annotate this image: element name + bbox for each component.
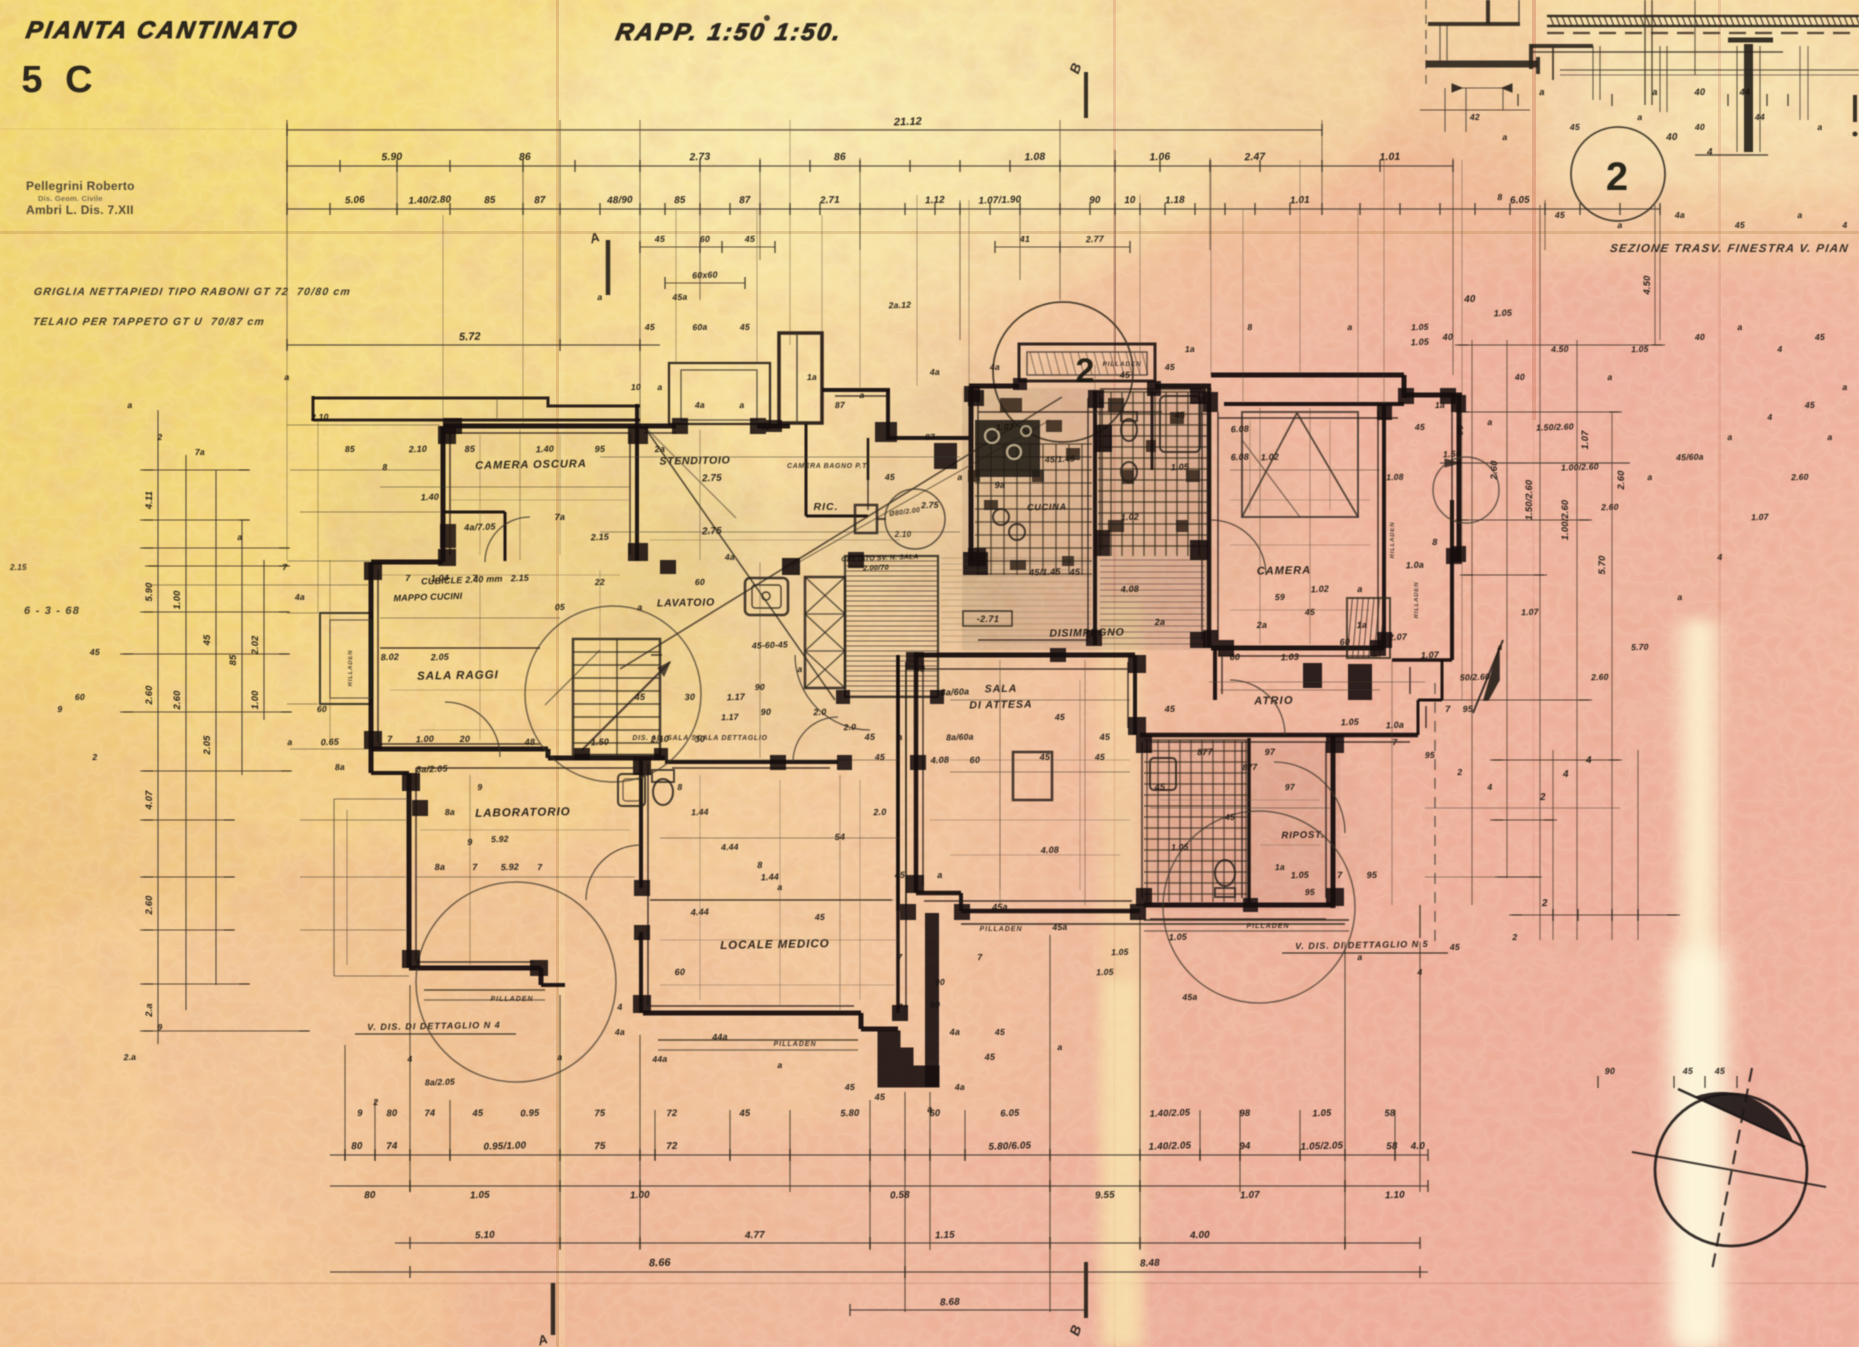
svg-text:1.44: 1.44	[691, 807, 709, 818]
svg-text:45/60a: 45/60a	[1675, 452, 1704, 463]
svg-text:1.00/2.60: 1.00/2.60	[1560, 499, 1570, 540]
svg-text:9: 9	[467, 837, 473, 847]
svg-text:TELAIO PER TAPPETO GT U 70/87: TELAIO PER TAPPETO GT U 70/87 cm	[32, 316, 266, 328]
svg-text:1.02: 1.02	[1311, 584, 1330, 595]
svg-text:80: 80	[351, 1141, 363, 1152]
svg-text:2.60: 2.60	[144, 895, 154, 916]
svg-text:20: 20	[459, 734, 471, 744]
svg-text:4.07: 4.07	[144, 790, 154, 811]
svg-text:1.05: 1.05	[1411, 337, 1430, 348]
svg-text:60: 60	[700, 234, 711, 244]
svg-text:4.08: 4.08	[1040, 845, 1060, 856]
svg-text:2: 2	[1511, 932, 1517, 942]
svg-text:40: 40	[1693, 87, 1706, 97]
svg-text:45: 45	[894, 870, 907, 880]
svg-text:9: 9	[157, 1022, 162, 1032]
svg-text:4a: 4a	[989, 362, 1000, 372]
svg-text:2a: 2a	[1256, 620, 1268, 630]
svg-text:1.05: 1.05	[1291, 870, 1310, 881]
svg-text:4: 4	[1776, 344, 1782, 354]
svg-text:60: 60	[675, 967, 686, 977]
svg-text:45: 45	[874, 1092, 887, 1102]
svg-text:a: a	[557, 1052, 562, 1062]
svg-text:SALA: SALA	[985, 683, 1018, 696]
svg-text:45: 45	[1804, 400, 1815, 410]
svg-text:2.60: 2.60	[1489, 460, 1499, 481]
svg-text:2.05: 2.05	[430, 652, 450, 663]
svg-text:1.01: 1.01	[1379, 152, 1400, 164]
svg-text:60: 60	[695, 577, 705, 587]
svg-text:a: a	[927, 1104, 933, 1114]
svg-text:10: 10	[1124, 195, 1136, 206]
svg-text:44a: 44a	[651, 1054, 667, 1065]
svg-text:CAMERA OSCURA: CAMERA OSCURA	[475, 458, 587, 472]
svg-text:2.a: 2.a	[144, 1003, 154, 1018]
svg-text:40: 40	[1463, 294, 1476, 305]
svg-text:a: a	[1727, 432, 1732, 442]
svg-text:60: 60	[1340, 637, 1351, 647]
svg-text:6.08: 6.08	[1231, 452, 1250, 463]
svg-text:90: 90	[1605, 1066, 1616, 1076]
svg-text:45: 45	[1224, 812, 1235, 822]
svg-text:85: 85	[465, 444, 477, 454]
svg-text:5.72: 5.72	[459, 331, 481, 344]
svg-text:45a: 45a	[1181, 992, 1197, 1003]
svg-text:a: a	[1677, 592, 1682, 602]
svg-text:2.10: 2.10	[894, 530, 912, 539]
svg-text:87: 87	[739, 195, 751, 206]
svg-text:2.05: 2.05	[202, 735, 212, 756]
svg-text:60x60: 60x60	[692, 270, 718, 281]
svg-text:SEZIONE TRASV. FINESTRA V. PIA: SEZIONE TRASV. FINESTRA V. PIAN	[1609, 243, 1850, 255]
svg-text:4: 4	[1562, 769, 1569, 780]
svg-text:4.77: 4.77	[744, 1230, 766, 1242]
svg-text:90: 90	[755, 682, 765, 692]
svg-text:1.02: 1.02	[1261, 452, 1280, 463]
svg-text:4: 4	[1766, 412, 1772, 422]
svg-text:1.50/2.60: 1.50/2.60	[1524, 479, 1534, 520]
svg-text:21.12: 21.12	[893, 116, 922, 129]
svg-text:2.10: 2.10	[310, 412, 329, 423]
svg-text:7a: 7a	[195, 447, 205, 457]
svg-text:2.75: 2.75	[701, 473, 723, 485]
svg-text:4.00: 4.00	[1189, 1230, 1211, 1242]
svg-text:0.95/1.00: 0.95/1.00	[483, 1140, 526, 1152]
svg-text:48: 48	[524, 737, 536, 747]
svg-text:4.50: 4.50	[1642, 275, 1652, 296]
svg-text:22: 22	[594, 577, 605, 587]
svg-text:a: a	[777, 1060, 782, 1070]
svg-text:45: 45	[1734, 220, 1745, 230]
svg-text:RILLADEN: RILLADEN	[348, 650, 354, 687]
svg-text:1.40/2.05: 1.40/2.05	[1148, 1140, 1191, 1152]
svg-text:45: 45	[1304, 607, 1315, 617]
svg-text:40: 40	[1514, 372, 1525, 382]
svg-text:5.90: 5.90	[381, 152, 402, 164]
svg-text:8: 8	[1432, 537, 1438, 547]
svg-text:87: 87	[835, 400, 846, 410]
svg-text:1.10: 1.10	[1385, 1190, 1406, 1202]
svg-text:PIANTA CANTINATO: PIANTA CANTINATO	[24, 17, 301, 44]
svg-text:2.60: 2.60	[172, 690, 182, 711]
svg-text:58: 58	[1386, 1141, 1398, 1152]
svg-text:RILLADEN: RILLADEN	[1414, 582, 1420, 619]
svg-text:85: 85	[345, 444, 355, 454]
svg-text:8.48: 8.48	[1140, 1258, 1161, 1270]
svg-text:8a/60a: 8a/60a	[940, 687, 969, 698]
svg-text:8a/2.05: 8a/2.05	[416, 763, 449, 774]
svg-text:5.92: 5.92	[491, 834, 509, 845]
svg-text:LAVATOIO: LAVATOIO	[657, 596, 715, 609]
svg-text:9.55: 9.55	[1095, 1190, 1116, 1202]
svg-text:95: 95	[595, 444, 607, 454]
svg-text:45: 45	[874, 752, 885, 762]
svg-text:4: 4	[1416, 967, 1422, 977]
svg-text:86: 86	[519, 152, 531, 163]
svg-text:54: 54	[835, 832, 846, 842]
svg-text:LABORATORIO: LABORATORIO	[475, 806, 571, 820]
svg-text:a: a	[1539, 87, 1545, 97]
svg-text:a: a	[597, 292, 602, 302]
svg-text:2.15: 2.15	[590, 532, 610, 543]
svg-text:a: a	[859, 390, 864, 400]
svg-text:1.0a: 1.0a	[1406, 560, 1425, 571]
svg-text:45: 45	[744, 234, 756, 244]
svg-text:4.44: 4.44	[690, 907, 710, 918]
svg-text:90: 90	[935, 977, 945, 987]
svg-text:a: a	[1357, 584, 1363, 594]
svg-text:45: 45	[1414, 422, 1425, 432]
svg-text:87: 87	[925, 432, 936, 442]
svg-text:45: 45	[1449, 942, 1460, 952]
svg-text:42: 42	[1469, 112, 1480, 122]
svg-text:1.05/2.05: 1.05/2.05	[1300, 1140, 1343, 1152]
svg-text:45: 45	[1814, 332, 1825, 342]
svg-text:45: 45	[89, 647, 100, 657]
svg-text:90: 90	[930, 1000, 941, 1010]
svg-text:45: 45	[1054, 712, 1065, 722]
svg-text:1.15: 1.15	[935, 1230, 956, 1242]
svg-text:4a: 4a	[949, 1027, 961, 1037]
svg-text:RIC.: RIC.	[814, 501, 839, 513]
svg-text:4.08: 4.08	[1120, 584, 1140, 595]
svg-text:a: a	[1487, 417, 1492, 427]
svg-text:45a: 45a	[671, 292, 687, 303]
svg-text:a: a	[1637, 112, 1642, 122]
svg-text:45: 45	[1039, 752, 1052, 762]
svg-text:45: 45	[1554, 210, 1565, 220]
svg-text:Dis. Geom. Civile: Dis. Geom. Civile	[38, 194, 103, 203]
svg-text:45: 45	[739, 322, 750, 332]
svg-text:Ambri L. Dis. 7.XII: Ambri L. Dis. 7.XII	[26, 203, 134, 217]
svg-text:a: a	[1797, 210, 1802, 220]
svg-text:CAMERA BAGNO P.T.: CAMERA BAGNO P.T.	[787, 463, 869, 470]
svg-text:8a/60a: 8a/60a	[946, 732, 974, 743]
svg-text:6 - 3 - 68: 6 - 3 - 68	[24, 605, 80, 617]
svg-text:2: 2	[1456, 767, 1462, 777]
svg-text:a: a	[797, 664, 802, 674]
svg-text:2.73: 2.73	[688, 152, 710, 164]
svg-text:1a: 1a	[1275, 862, 1285, 872]
svg-text:2.77: 2.77	[1085, 234, 1105, 245]
svg-text:2a.12: 2a.12	[887, 300, 911, 311]
svg-text:60: 60	[317, 704, 327, 714]
svg-text:1.07: 1.07	[1751, 512, 1770, 523]
svg-text:a: a	[657, 382, 662, 392]
svg-text:8.68: 8.68	[940, 1297, 961, 1309]
svg-text:40: 40	[1442, 332, 1454, 342]
svg-text:a: a	[1737, 322, 1742, 332]
svg-text:a: a	[127, 400, 132, 410]
svg-text:4: 4	[1841, 220, 1847, 230]
svg-text:45: 45	[1094, 752, 1105, 762]
svg-text:9: 9	[357, 1108, 363, 1118]
svg-text:2: 2	[1606, 155, 1628, 199]
svg-text:9: 9	[57, 704, 62, 714]
svg-text:1.07: 1.07	[1580, 430, 1590, 450]
svg-text:4.50: 4.50	[1550, 344, 1569, 355]
svg-text:1.40/2.05: 1.40/2.05	[1149, 1107, 1191, 1118]
svg-text:1.40: 1.40	[536, 444, 555, 455]
svg-text:44a: 44a	[711, 1032, 728, 1043]
svg-text:75: 75	[594, 1141, 606, 1152]
svg-text:4: 4	[616, 1002, 623, 1012]
svg-text:2.0: 2.0	[872, 807, 886, 817]
svg-text:5.70: 5.70	[1597, 555, 1607, 575]
svg-text:45: 45	[814, 912, 825, 922]
svg-text:4a: 4a	[614, 1027, 625, 1037]
svg-text:5.80: 5.80	[840, 1108, 860, 1119]
svg-text:PILLADEN: PILLADEN	[1103, 361, 1142, 368]
svg-text:2.60: 2.60	[144, 685, 154, 706]
svg-text:1.07: 1.07	[996, 422, 1015, 433]
svg-text:2.15: 2.15	[9, 563, 27, 572]
svg-text:4: 4	[1585, 755, 1592, 766]
svg-text:2.a: 2.a	[122, 1052, 136, 1062]
svg-text:0.95: 0.95	[520, 1108, 540, 1119]
svg-text:a: a	[1617, 220, 1622, 230]
svg-text:877: 877	[1197, 747, 1214, 758]
svg-text:45: 45	[1164, 362, 1175, 372]
svg-text:5.92: 5.92	[501, 862, 520, 873]
svg-text:1.05: 1.05	[470, 1190, 491, 1202]
svg-text:a: a	[1497, 642, 1502, 652]
svg-text:1.02: 1.02	[1121, 512, 1140, 523]
svg-text:5 C: 5 C	[21, 59, 98, 101]
svg-text:45: 45	[1069, 567, 1082, 577]
svg-text:97: 97	[1285, 782, 1296, 792]
svg-text:2.10: 2.10	[408, 444, 428, 455]
svg-text:98: 98	[1239, 1108, 1251, 1118]
svg-text:2: 2	[1541, 898, 1548, 909]
svg-text:a: a	[1357, 952, 1362, 962]
svg-text:85: 85	[674, 195, 686, 206]
svg-text:a: a	[1502, 132, 1507, 142]
svg-text:4a: 4a	[954, 1082, 965, 1092]
svg-text:45: 45	[1164, 704, 1177, 714]
svg-text:4.0: 4.0	[1410, 1141, 1426, 1153]
svg-text:2.02: 2.02	[250, 635, 260, 656]
svg-text:2.10: 2.10	[650, 734, 670, 745]
svg-text:a: a	[1607, 372, 1612, 382]
svg-text:PILLADEN: PILLADEN	[980, 926, 1023, 933]
svg-text:1a: 1a	[1357, 620, 1368, 630]
svg-text:RAPP. 1:50 1:50.: RAPP. 1:50 1:50.	[614, 19, 845, 46]
svg-text:1.00: 1.00	[416, 734, 435, 745]
svg-text:8: 8	[382, 462, 387, 472]
svg-text:6.05: 6.05	[1000, 1108, 1020, 1119]
svg-text:1.07: 1.07	[1521, 607, 1540, 618]
svg-text:1.03: 1.03	[1281, 652, 1300, 663]
svg-text:4a: 4a	[724, 552, 735, 562]
svg-text:95: 95	[1425, 750, 1435, 760]
svg-text:94: 94	[1239, 1141, 1251, 1152]
svg-text:95: 95	[1305, 887, 1315, 897]
svg-text:a: a	[1842, 382, 1847, 392]
svg-text:2.15: 2.15	[510, 573, 530, 584]
svg-text:1.07: 1.07	[1240, 1190, 1261, 1202]
svg-text:90: 90	[1089, 195, 1101, 206]
svg-text:58: 58	[1384, 1108, 1396, 1118]
svg-text:45: 45	[1174, 410, 1187, 420]
svg-text:1a: 1a	[1185, 344, 1195, 354]
svg-text:0.58: 0.58	[890, 1190, 911, 1202]
svg-text:1.17: 1.17	[721, 712, 740, 723]
svg-text:a: a	[237, 532, 242, 542]
svg-text:45: 45	[471, 1108, 484, 1118]
svg-text:1.08: 1.08	[1024, 152, 1045, 164]
svg-text:2.60: 2.60	[1790, 472, 1809, 483]
svg-text:a: a	[1827, 432, 1832, 442]
svg-text:40: 40	[1694, 122, 1705, 132]
svg-text:4: 4	[1486, 782, 1492, 792]
svg-text:85: 85	[228, 654, 238, 665]
svg-text:05: 05	[555, 602, 565, 612]
svg-text:2.0: 2.0	[842, 722, 856, 732]
svg-text:8a: 8a	[335, 762, 345, 772]
svg-text:9: 9	[477, 782, 482, 792]
svg-text:48/90: 48/90	[606, 195, 633, 207]
svg-text:87: 87	[534, 195, 546, 206]
svg-text:1.05: 1.05	[1171, 462, 1190, 473]
svg-text:1.0a: 1.0a	[1386, 720, 1405, 731]
svg-text:95: 95	[1367, 870, 1379, 880]
svg-text:8a: 8a	[445, 807, 455, 817]
svg-text:1.07/1.90: 1.07/1.90	[978, 194, 1021, 206]
svg-text:45: 45	[994, 1027, 1005, 1037]
svg-text:44: 44	[1754, 112, 1765, 122]
svg-text:74: 74	[386, 1141, 398, 1152]
svg-text:8: 8	[757, 860, 763, 870]
svg-text:a: a	[1647, 472, 1652, 482]
svg-text:a: a	[897, 732, 903, 742]
svg-text:1.08: 1.08	[1386, 472, 1404, 483]
svg-text:5.70: 5.70	[1631, 642, 1649, 653]
svg-text:1.05: 1.05	[1494, 308, 1513, 319]
svg-text:a: a	[957, 472, 962, 482]
svg-text:1.40/2.80: 1.40/2.80	[408, 194, 451, 206]
svg-text:97: 97	[1265, 747, 1277, 757]
svg-text:2: 2	[372, 1097, 378, 1107]
svg-text:STENDITOIO: STENDITOIO	[659, 454, 730, 467]
svg-text:2.71: 2.71	[819, 195, 840, 207]
svg-text:5.10: 5.10	[475, 1230, 496, 1242]
svg-text:a: a	[1347, 322, 1352, 332]
svg-text:75: 75	[594, 1108, 606, 1118]
svg-text:6.05: 6.05	[1510, 195, 1531, 207]
svg-text:SALA RAGGI: SALA RAGGI	[417, 669, 499, 682]
svg-text:45: 45	[1099, 732, 1112, 742]
svg-text:8a/2.05: 8a/2.05	[425, 1076, 455, 1087]
svg-text:74: 74	[424, 1108, 436, 1118]
svg-text:2.75: 2.75	[701, 526, 723, 538]
svg-text:a: a	[287, 737, 292, 747]
svg-text:45a: 45a	[1051, 922, 1067, 933]
svg-text:45: 45	[654, 234, 666, 244]
svg-text:2: 2	[91, 752, 97, 762]
svg-text:-2.71: -2.71	[977, 614, 1000, 624]
svg-text:4: 4	[1716, 552, 1722, 562]
svg-text:1.05: 1.05	[1341, 717, 1360, 728]
svg-text:2.60: 2.60	[1616, 470, 1626, 491]
svg-text:a: a	[937, 870, 943, 880]
svg-text:45: 45	[634, 692, 647, 702]
svg-text:95: 95	[1463, 704, 1475, 714]
svg-text:72: 72	[666, 1141, 678, 1152]
svg-text:45/1.45: 45/1.45	[1044, 453, 1075, 464]
svg-text:1.00: 1.00	[172, 590, 182, 610]
svg-text:a: a	[637, 602, 642, 612]
svg-text:1.05: 1.05	[1169, 932, 1188, 943]
svg-text:1a: 1a	[807, 372, 817, 382]
svg-text:a: a	[1057, 1042, 1062, 1052]
svg-text:1.40: 1.40	[421, 492, 440, 503]
svg-text:8a: 8a	[435, 862, 446, 872]
svg-text:6.08: 6.08	[1231, 424, 1250, 435]
svg-text:a: a	[1652, 87, 1658, 97]
svg-text:45: 45	[1119, 370, 1132, 380]
svg-text:2.00/70: 2.00/70	[862, 563, 889, 573]
svg-text:2: 2	[1076, 352, 1095, 390]
svg-text:80: 80	[386, 1108, 398, 1118]
svg-text:a: a	[739, 400, 744, 410]
svg-text:1a: 1a	[1435, 400, 1445, 410]
svg-text:4.11: 4.11	[144, 491, 154, 510]
svg-text:1.00: 1.00	[630, 1190, 651, 1202]
svg-text:Pellegrini Roberto: Pellegrini Roberto	[26, 179, 135, 193]
svg-text:2.60: 2.60	[1590, 672, 1609, 683]
svg-text:8.02: 8.02	[381, 652, 400, 663]
svg-text:45: 45	[1154, 782, 1167, 792]
svg-text:GRIGLIA NETTAPIEDI TIPO RABONI: GRIGLIA NETTAPIEDI TIPO RABONI GT 72 70/…	[33, 286, 352, 298]
svg-text:45: 45	[1682, 1066, 1694, 1076]
svg-text:60: 60	[75, 692, 85, 702]
svg-text:45: 45	[884, 472, 895, 482]
svg-text:90: 90	[761, 707, 772, 717]
svg-text:4a: 4a	[294, 592, 305, 602]
svg-text:1.12: 1.12	[925, 195, 946, 207]
svg-text:1.05: 1.05	[1631, 344, 1649, 355]
svg-text:4: 4	[1706, 147, 1713, 158]
svg-text:50/2.60: 50/2.60	[1460, 671, 1490, 682]
svg-text:1.05: 1.05	[1096, 967, 1114, 978]
svg-text:1.00/2.60: 1.00/2.60	[1561, 461, 1599, 472]
svg-text:59: 59	[1275, 592, 1285, 602]
svg-text:5.06: 5.06	[345, 195, 366, 207]
svg-text:PILLADEN: PILLADEN	[774, 1041, 817, 1048]
svg-text:30: 30	[695, 734, 706, 744]
svg-text:45: 45	[644, 322, 655, 332]
